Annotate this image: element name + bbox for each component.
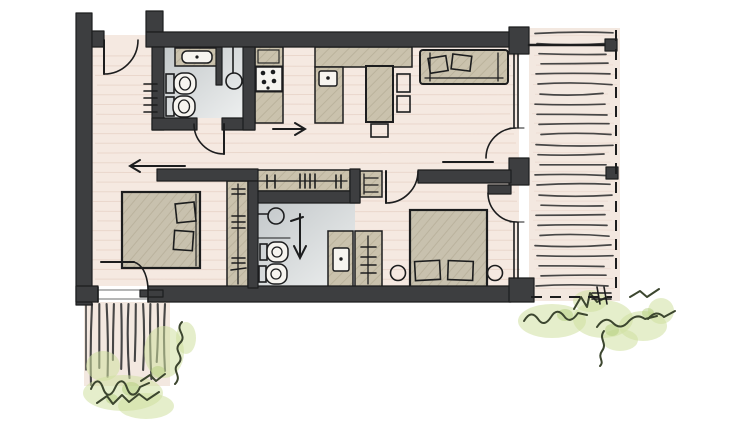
kitchen [255, 47, 412, 137]
bathroom-top-wall-right [243, 47, 255, 130]
wall-stub-top [146, 11, 163, 32]
wardrobe [227, 181, 248, 288]
terrace-right [529, 28, 620, 301]
bathroom-bottom-wall-left [248, 181, 258, 288]
kitchen-counter-top [315, 47, 412, 67]
wall-bottom [148, 286, 511, 302]
sofa [420, 50, 508, 84]
vanity-unit [328, 231, 353, 288]
washbasin-icon [182, 51, 212, 63]
floor-plan-drawing [0, 0, 754, 435]
column-top-right [509, 27, 529, 54]
entry-threshold-floor [104, 35, 146, 47]
shelf-cabinet [360, 171, 382, 197]
wardrobe [355, 231, 382, 288]
closet-side-wall [350, 169, 360, 203]
partition-wall [216, 47, 222, 85]
entry-door-jamb [92, 31, 104, 47]
column-mid-right [509, 158, 529, 185]
double-bed [122, 192, 200, 268]
double-bed [410, 210, 487, 287]
mid-wall-right [418, 170, 511, 183]
threshold-bar [140, 290, 163, 297]
floor-plan-canvas [0, 0, 754, 435]
wall-bottom-left [76, 286, 98, 302]
wall-top [146, 32, 511, 47]
wall-bottom-corner [509, 278, 534, 302]
mid-wall-left [157, 169, 258, 181]
dining-table [366, 66, 393, 122]
closet-back-wall [256, 191, 360, 203]
hall-closet [256, 170, 350, 191]
door-jamb-stub [488, 185, 511, 194]
bathroom-top-wall-bottom [152, 118, 197, 130]
wall-left [76, 13, 92, 305]
kitchen-sink-icon [319, 71, 337, 86]
cooktop-icon [256, 67, 282, 91]
